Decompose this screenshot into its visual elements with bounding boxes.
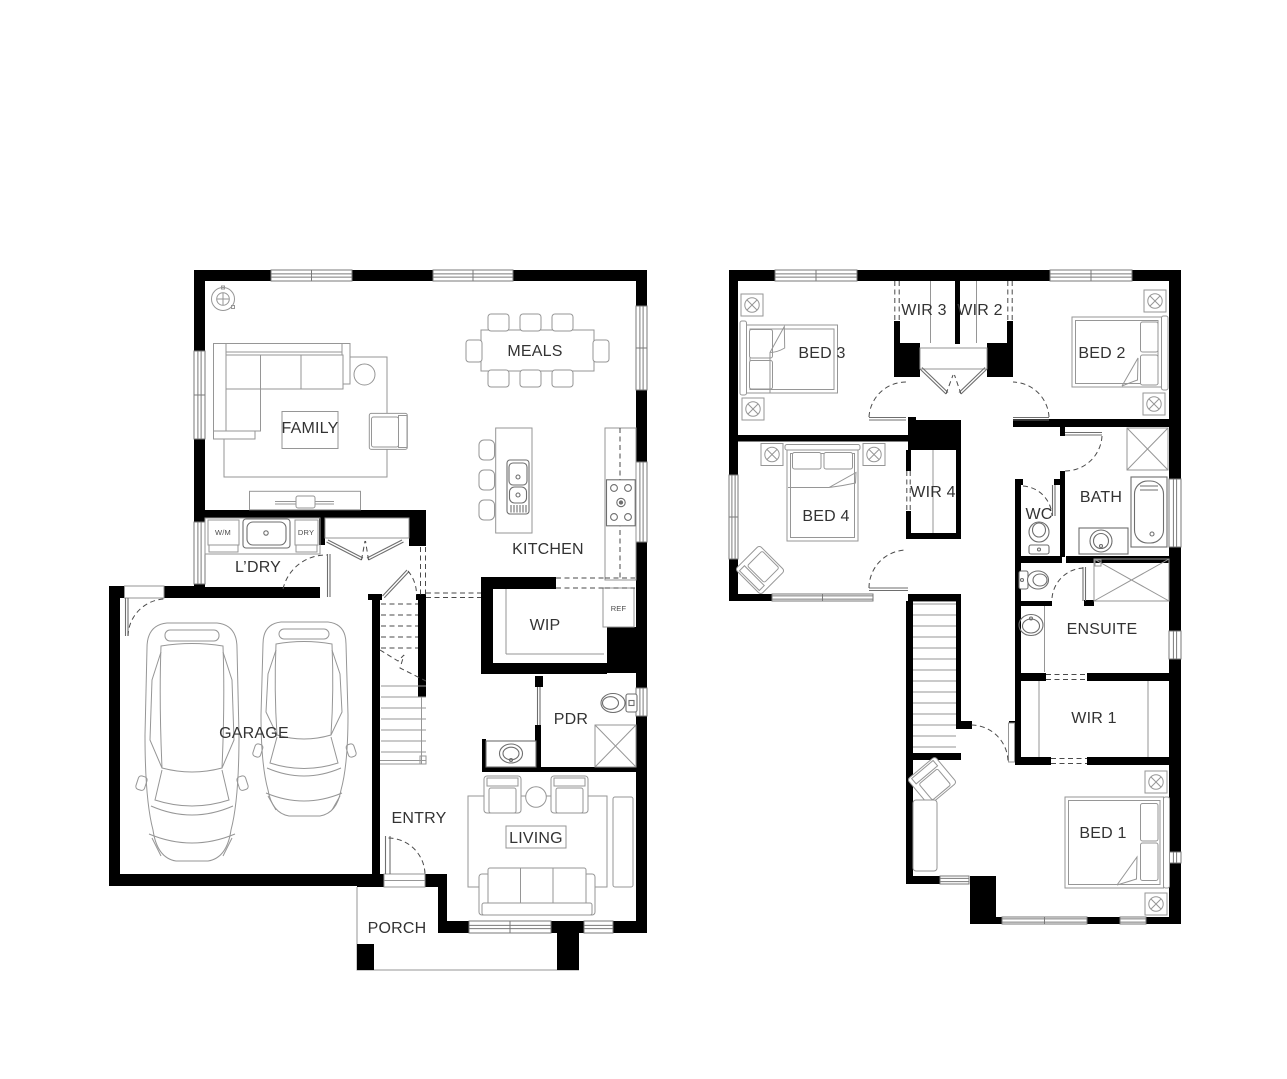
svg-text:PDR: PDR (554, 711, 588, 728)
svg-text:L’DRY: L’DRY (235, 559, 281, 576)
svg-text:REF: REF (611, 604, 627, 613)
svg-text:BED 1: BED 1 (1079, 825, 1126, 842)
svg-text:LIVING: LIVING (509, 830, 563, 847)
svg-text:BED 4: BED 4 (802, 508, 849, 525)
svg-text:WIR 1: WIR 1 (1071, 710, 1116, 727)
svg-text:PORCH: PORCH (368, 920, 427, 937)
svg-text:FAMILY: FAMILY (282, 420, 339, 437)
svg-text:WIR 4: WIR 4 (910, 484, 955, 501)
svg-text:WC: WC (1025, 506, 1052, 523)
svg-text:BED 2: BED 2 (1078, 345, 1125, 362)
svg-text:ENSUITE: ENSUITE (1067, 621, 1138, 638)
svg-text:BATH: BATH (1080, 489, 1122, 506)
svg-text:BED 3: BED 3 (798, 345, 845, 362)
svg-text:GARAGE: GARAGE (219, 725, 289, 742)
svg-text:ENTRY: ENTRY (392, 810, 447, 827)
svg-text:KITCHEN: KITCHEN (512, 541, 584, 558)
svg-text:WIR 2: WIR 2 (957, 302, 1002, 319)
svg-text:WIP: WIP (530, 617, 561, 634)
svg-text:WIR 3: WIR 3 (901, 302, 946, 319)
svg-text:MEALS: MEALS (507, 343, 562, 360)
svg-text:W/M: W/M (215, 528, 231, 537)
svg-text:DRY: DRY (298, 528, 314, 537)
